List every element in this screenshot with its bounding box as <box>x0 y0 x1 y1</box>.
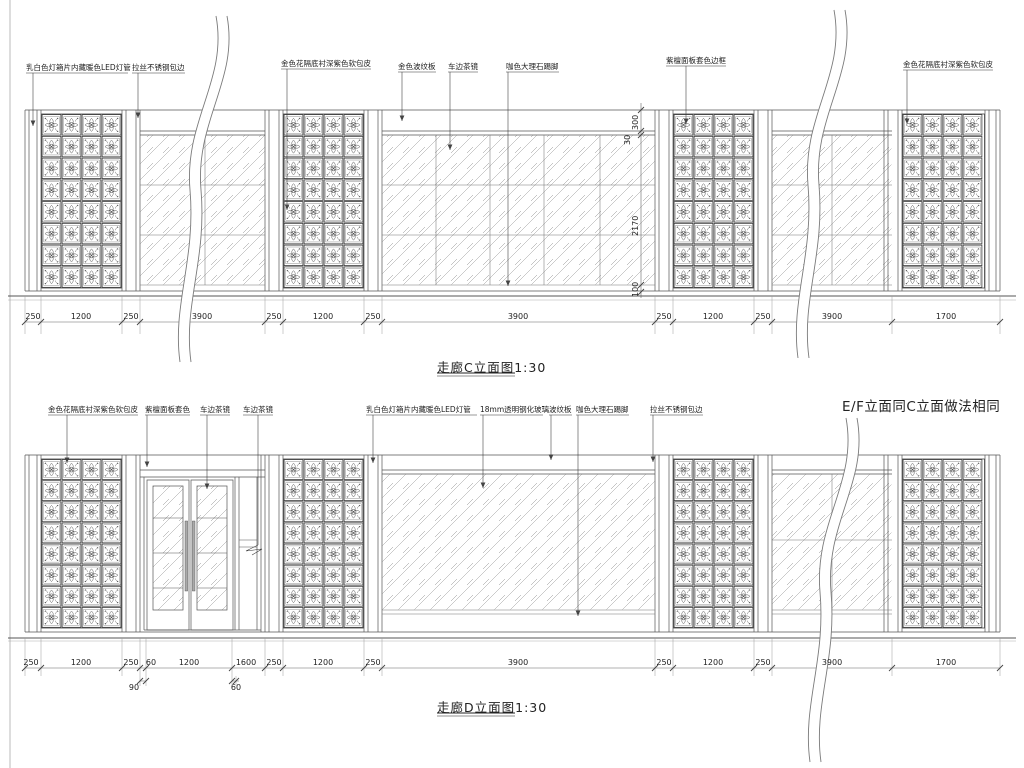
dim-label: 1700 <box>936 312 956 321</box>
elevation-d-title: 走廊D立面图1:30 <box>437 697 547 716</box>
dim-label: 250 <box>755 312 770 321</box>
mirror-glass <box>383 136 655 285</box>
dim-label: 250 <box>23 658 38 667</box>
material-label: 咖色大理石踢脚 <box>576 404 629 415</box>
dim-label: 90 <box>129 683 139 692</box>
dim-label: 1200 <box>313 312 333 321</box>
material-label: 波纹板 <box>549 404 572 415</box>
dim-label: 3900 <box>192 312 212 321</box>
material-label: 紫檀面板套色 <box>145 404 190 415</box>
dim-label: 1200 <box>313 658 333 667</box>
dim-label: 250 <box>365 312 380 321</box>
dim-label: 250 <box>123 312 138 321</box>
material-label: 车边茶镜 <box>448 61 478 72</box>
dim-label: 60 <box>231 683 241 692</box>
dim-label: 1200 <box>703 312 723 321</box>
dim-label: 60 <box>146 658 156 667</box>
dim-label: 1200 <box>703 658 723 667</box>
mirror-glass <box>141 136 265 285</box>
material-label: 金色波纹板 <box>398 61 436 72</box>
dim-label: 250 <box>123 658 138 667</box>
material-label: 紫檀面板套色边框 <box>666 55 726 66</box>
sidelight-divisions <box>239 540 257 547</box>
dim-label: 1200 <box>71 312 91 321</box>
dim-label: 250 <box>755 658 770 667</box>
elevation-d-wall <box>8 455 1016 641</box>
dim-label: 250 <box>266 312 281 321</box>
dim-label: 1200 <box>179 658 199 667</box>
dim-label: 250 <box>656 312 671 321</box>
vertical-dim-label: 300 <box>631 115 640 130</box>
dim-label: 250 <box>266 658 281 667</box>
ef-elevation-note: E/F立面同C立面做法相同 <box>842 395 1000 415</box>
material-label: 金色花隔底衬深紫色软包皮 <box>281 58 371 69</box>
led-lightbox-band <box>382 470 892 474</box>
material-label: 车边茶镜 <box>243 404 273 415</box>
dim-label: 1700 <box>936 658 956 667</box>
door-handle <box>185 521 188 591</box>
door-glass-left <box>153 486 183 610</box>
dim-label: 1200 <box>71 658 91 667</box>
door-glass-right <box>197 486 227 610</box>
material-label: 拉丝不锈钢包边 <box>132 62 185 73</box>
material-label: 18mm透明钢化玻璃 <box>480 404 549 415</box>
dim-label: 3900 <box>508 312 528 321</box>
drawing-sheet: 乳白色灯箱片内藏暖色LED灯管 拉丝不锈钢包边 金色花隔底衬深紫色软包皮 金色波… <box>0 0 1024 768</box>
material-label: 乳白色灯箱片内藏暖色LED灯管 <box>26 62 131 73</box>
material-label: 车边茶镜 <box>200 404 230 415</box>
elevation-c-wall <box>8 110 1016 300</box>
dim-label: 250 <box>25 312 40 321</box>
material-label: 金色花隔底衬深紫色软包皮 <box>903 59 993 70</box>
dim-label: 1600 <box>236 658 256 667</box>
tempered-glass <box>383 475 655 610</box>
dim-label: 250 <box>656 658 671 667</box>
corrugated-gold-band <box>140 131 892 135</box>
material-label: 金色花隔底衬深紫色软包皮 <box>48 404 138 415</box>
dim-label: 3900 <box>822 312 842 321</box>
dim-label: 3900 <box>508 658 528 667</box>
door-handle <box>192 521 195 591</box>
vertical-dim-label: 2170 <box>631 216 640 236</box>
zigzag-leader <box>246 545 262 555</box>
vertical-dim-label: 30 <box>623 135 632 145</box>
elevation-c-title: 走廊C立面图1:30 <box>437 357 546 376</box>
cad-linework <box>0 0 1024 768</box>
material-label: 乳白色灯箱片内藏暖色LED灯管 <box>366 404 471 415</box>
vertical-dim-label: 100 <box>631 282 640 297</box>
dim-label: 3900 <box>822 658 842 667</box>
dim-label: 250 <box>365 658 380 667</box>
material-label: 咖色大理石踢脚 <box>506 61 559 72</box>
material-label: 拉丝不锈钢包边 <box>650 404 703 415</box>
